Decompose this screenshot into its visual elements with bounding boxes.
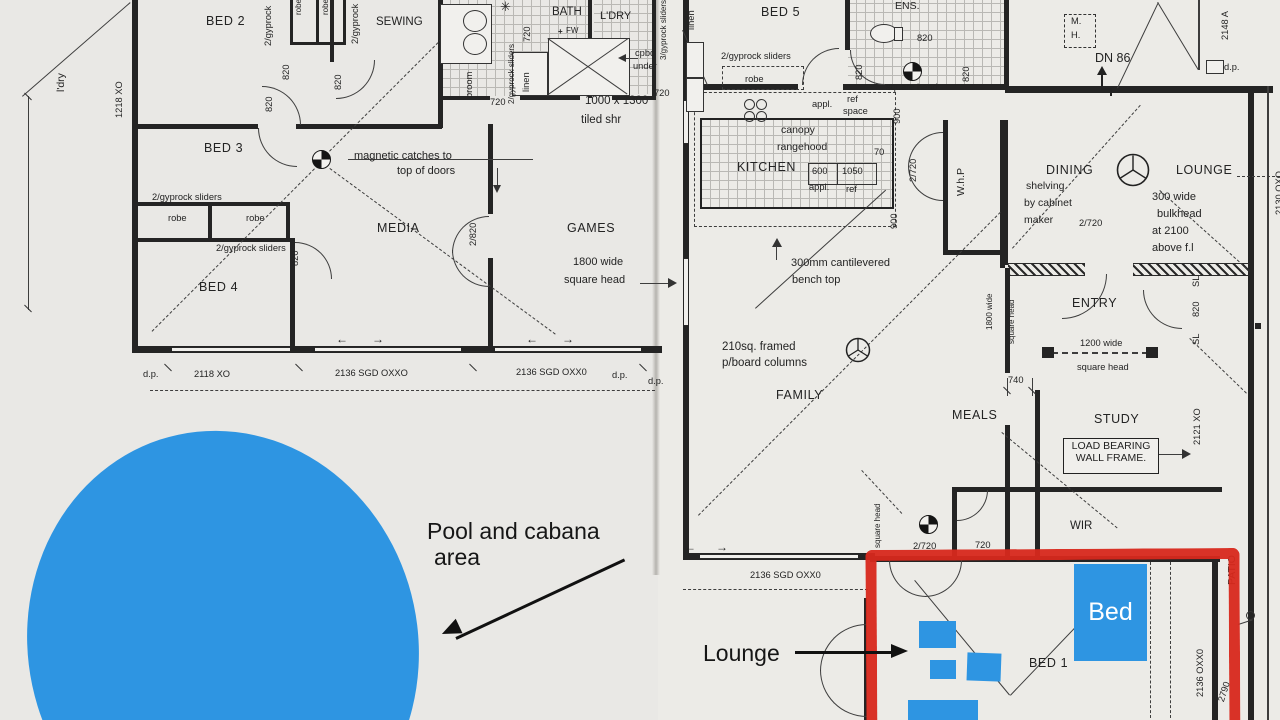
room-label-bath: BATH [552,6,582,19]
room-label-bed5: BED 5 [761,5,800,19]
step-arrow-line [1101,74,1103,88]
dimension-tick [639,364,647,372]
room-label-bed4: BED 4 [199,280,238,294]
leader-line [776,246,777,260]
room-label-meals: MEALS [952,408,997,422]
wall-segment [286,202,290,242]
note: 300 wide [1152,191,1196,203]
note: robe [246,213,265,223]
note: canopy [781,125,815,137]
note: top of doors [397,165,455,177]
cooktop-icon [744,111,755,122]
furniture-rectangle [930,660,956,679]
cooktop-icon [756,111,767,122]
smoke-detector-icon [919,515,938,534]
manhole-box: M. H. [1064,14,1096,48]
note: 2/gyprock sliders [216,243,286,253]
toilet-cistern [894,27,903,41]
window [495,347,641,352]
dim: 720 [654,88,670,98]
room-label-sewing: SEWING [376,16,423,29]
room-label-whp: W.h.P [956,168,968,196]
note-vertical: 2/gyprock sliders [508,44,517,104]
note: p/board columns [722,357,807,370]
dim: SL [1191,276,1201,287]
ceiling-fan-icon [1116,153,1150,187]
basin-icon [463,10,487,32]
dim: 2/820 [468,223,478,246]
note: square head [1077,362,1129,372]
note: DN 86 [1095,51,1130,65]
window [700,554,858,559]
arrow-right-icon [1182,449,1191,459]
arrow-down-icon [493,185,501,193]
room-label-study: STUDY [1094,412,1139,426]
note-vertical: robe [295,0,304,15]
furniture-rectangle [908,700,978,720]
dim: d.p. [612,370,628,380]
wall-segment [290,0,293,44]
dimension-line [1032,378,1033,396]
wall-mark [1255,323,1261,329]
note: robe [168,213,187,223]
note: tiled shr [581,114,621,127]
lounge-annotation: Lounge [703,640,780,667]
note: square head [886,82,938,92]
note: 2/gyprock sliders [721,51,791,61]
room-label-lounge: LOUNGE [1176,163,1232,177]
door-swing-icon [258,128,297,167]
dim: d.p. [1224,62,1240,72]
light-symbol-icon: ✳ [500,0,511,15]
note: 300mm cantilevered [791,257,890,269]
porch-line [1198,0,1200,70]
pool-highlight-ellipse [0,394,458,720]
dimension-tick [164,364,172,372]
window [315,347,461,352]
bed-label: Bed [1088,598,1132,627]
dim: 70 [874,147,884,157]
wall-segment [1005,86,1273,93]
note-vertical: 3/gyprock sliders [660,0,669,60]
leader-line [497,168,498,186]
note: bench top [792,274,840,286]
smoke-detector-icon [312,150,331,169]
floor-plan-screenshot: M. H. ← → ← → ← → ✳ + [0,0,1280,720]
square-head-opening [1052,352,1148,354]
window [684,258,688,326]
note-vertical: l'dry [56,73,68,92]
room-label-family: FAMILY [776,388,823,402]
basin-icon [463,33,487,55]
note: shelving [1026,181,1065,193]
dim: 740 [1008,375,1024,385]
dim: 820 [1191,301,1201,317]
note: 1200 wide [1080,338,1122,348]
room-label-dining: DINING [1046,163,1093,177]
setout-line [150,390,655,391]
dim: 820 [917,33,933,43]
dim: 600 [812,166,828,176]
note: ref [846,184,857,194]
note: space [843,106,868,116]
bed-highlight-rectangle: Bed [1074,564,1147,661]
dim: 900 [889,213,899,229]
wall-segment [520,96,580,100]
dim: d.p. [143,369,159,379]
manhole-label: M. [1071,16,1081,26]
floor-waste-icon: + [558,28,563,37]
note: 210sq. framed [722,341,796,354]
dim: 820 [290,250,300,266]
leader-line [1157,454,1183,455]
slider-arrow-icon: → [562,333,574,346]
note: 1800 wide [573,256,623,268]
wall-segment [1004,0,1009,88]
note: maker [1024,215,1053,227]
room-label-bed3: BED 3 [204,141,243,155]
note: ref [847,94,858,104]
dim: 2136 SGD OXX0 [516,367,587,377]
pool-annotation-line1: Pool and cabana [427,518,600,545]
wall-segment [296,124,442,129]
dim: 820 [281,64,291,80]
wall-segment [1042,347,1054,358]
note-vertical: 1800 wide [986,294,995,330]
door-swing-icon [452,250,489,287]
lounge-arrow-head-icon [891,644,908,658]
slider-arrow-icon: ← [684,541,696,554]
note-vertical: broom [464,72,474,98]
dim: 2/720 [1079,218,1102,228]
note: FW [566,27,578,36]
dim: 2118 XO [194,369,230,379]
dimension-line [28,96,29,310]
note-vertical: square head [874,504,883,548]
note-vertical: 2/gyprock [263,6,273,46]
door-swing-icon [295,242,332,279]
note: 2/gyprock sliders [152,192,222,202]
note: cpbd [635,48,655,58]
wall-segment [943,250,1005,255]
leader-line [640,283,670,284]
furniture-rectangle [919,621,956,648]
wall-segment [1146,347,1158,358]
wall-segment [1248,86,1254,720]
dim: 2/720 [908,159,918,182]
note: WALL FRAME. [1064,453,1158,465]
room-label-games: GAMES [567,221,615,235]
note: rangehood [777,142,827,154]
note: robe [745,74,764,84]
note: magnetic catches to [354,150,452,162]
step-arrow-line [1110,88,1112,96]
dim: 720 [522,26,532,42]
room-label-entry: ENTRY [1072,296,1117,310]
wall-segment [132,124,258,129]
slider-arrow-icon: → [372,333,384,346]
cooktop-icon [756,99,767,110]
note: 1000 x 1300 [585,95,648,108]
dim: 1050 [842,166,863,176]
dim: 820 [264,96,274,112]
room-label-kitchen: KITCHEN [737,160,796,174]
furniture-rectangle [967,652,1002,681]
wall-segment [316,0,319,44]
wall-segment [1003,120,1008,265]
cooktop-icon [744,99,755,110]
wall-hatched [1133,263,1250,276]
note: appl. [812,99,832,109]
dim: 1218 XO [114,81,124,118]
load-bearing-box: LOAD BEARING WALL FRAME. [1063,438,1159,474]
note: square head [564,274,625,286]
dim: 820 [961,66,971,82]
wall-segment [943,120,948,255]
dim: 2121 XO [1192,408,1202,445]
ceiling-fan-icon [845,337,871,363]
smoke-detector-icon [903,62,922,81]
dim: SL [1191,334,1201,345]
dim: 820 [854,64,864,80]
arrow-right-icon [668,278,677,288]
setout-line [683,589,868,590]
slider-arrow-icon: → [716,541,728,554]
wall-segment [845,0,850,50]
note: appl. [809,182,829,192]
note-vertical: 2/gyprock [350,4,360,44]
slider-arrow-icon: ← [526,333,538,346]
room-label-ldry: L'DRY [600,10,631,22]
room-label-wir: WIR [1070,520,1092,533]
dim: 2148 A [1220,11,1230,40]
wall-segment [132,0,138,352]
note: at 2100 [1152,225,1189,237]
oven-tower [686,78,704,112]
dimension-tick [295,364,303,372]
note-vertical: robe [322,0,331,15]
wall-segment [488,124,493,214]
note-vertical: linen [521,72,531,92]
arrow-up-icon [772,238,782,247]
wall-segment [1005,425,1010,560]
note: above f.l [1152,242,1194,254]
dim: 2136 SGD OXX0 [750,570,821,580]
room-label-bed2: BED 2 [206,14,245,28]
room-label-ens: ENS. [895,1,920,13]
dim: 2130 OXO [1274,171,1280,215]
dimension-tick [469,364,477,372]
dim: 820 [333,74,343,90]
dim: 2136 SGD OXXO [335,368,408,378]
arrow-left-icon [618,54,626,62]
window [172,347,290,352]
note: bulkhead [1157,208,1202,220]
lounge-arrow-line [795,651,893,654]
ceiling-line [329,168,555,335]
patio-edge-line [1267,86,1269,720]
note: LOAD BEARING [1064,441,1158,453]
note-vertical: linen [686,10,696,30]
oven-tower [686,42,704,78]
slider-arrow-icon: ← [336,333,348,346]
dim: 720 [490,97,506,107]
note: by cabinet [1024,198,1072,210]
wall-segment [290,42,346,45]
wall-segment [343,0,346,44]
manhole-label: H. [1071,30,1080,40]
wall-segment [1035,390,1040,557]
downpipe-box [1206,60,1224,74]
wall-segment [208,202,212,242]
wall-segment [952,487,1222,492]
dim: d.p. [648,376,664,386]
pool-arrow-line [455,559,625,640]
pool-annotation-line2: area [434,544,480,571]
room-label-media: MEDIA [377,221,420,235]
note-vertical: square head [1008,300,1017,344]
note: under [633,61,657,71]
dim: 900 [892,108,902,124]
